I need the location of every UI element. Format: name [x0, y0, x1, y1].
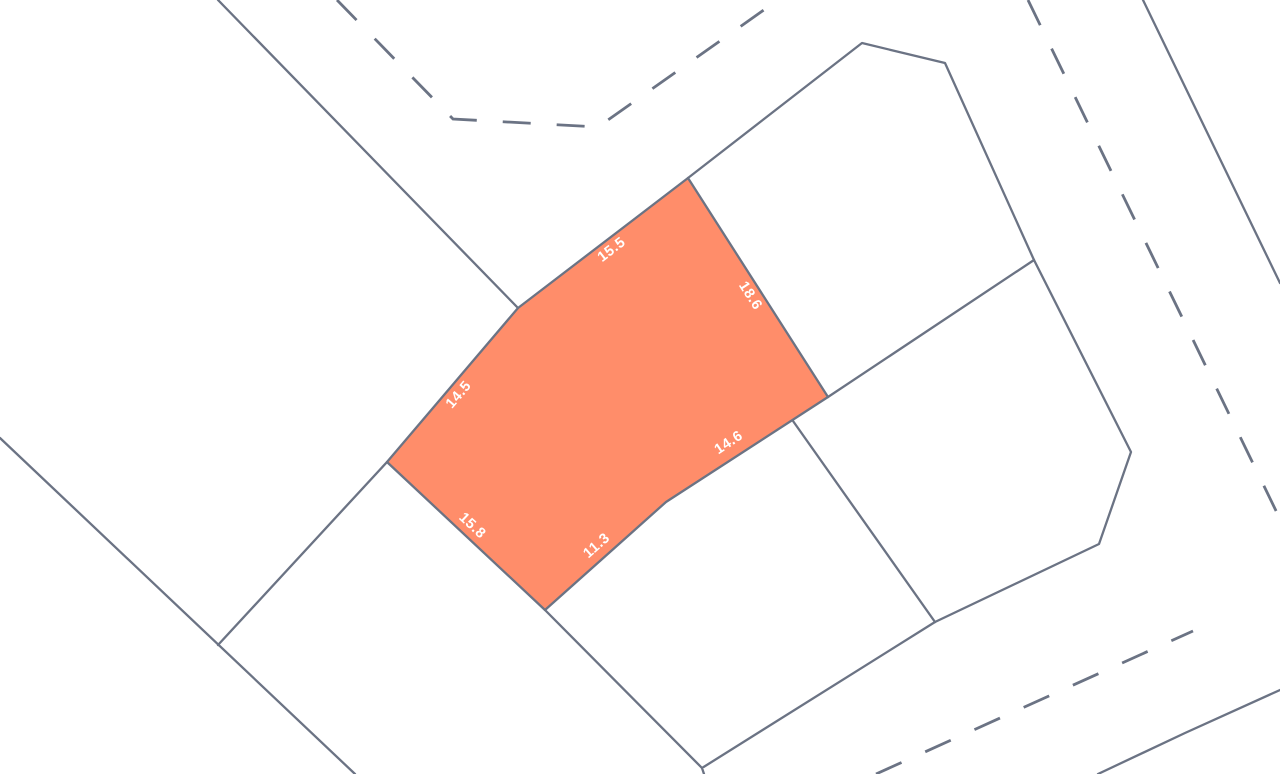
- parcel-boundary-line-2: [828, 260, 1034, 397]
- parcel-boundary-line-3: [793, 421, 935, 622]
- road-dashed-line-0: [337, 0, 778, 127]
- parcel-boundary-line-5: [0, 438, 355, 774]
- parcel-boundary-line-8: [1098, 690, 1280, 774]
- map-canvas[interactable]: 15.518.614.611.315.814.5: [0, 0, 1280, 774]
- road-dashed-line-1: [1028, 0, 1280, 519]
- parcel-boundary-line-7: [1143, 0, 1280, 283]
- cadastral-map[interactable]: 15.518.614.611.315.814.5: [0, 0, 1280, 774]
- parcel-boundary-line-0: [218, 0, 518, 308]
- parcel-boundary-line-6: [218, 462, 387, 645]
- parcel-boundary-line-4: [545, 610, 702, 768]
